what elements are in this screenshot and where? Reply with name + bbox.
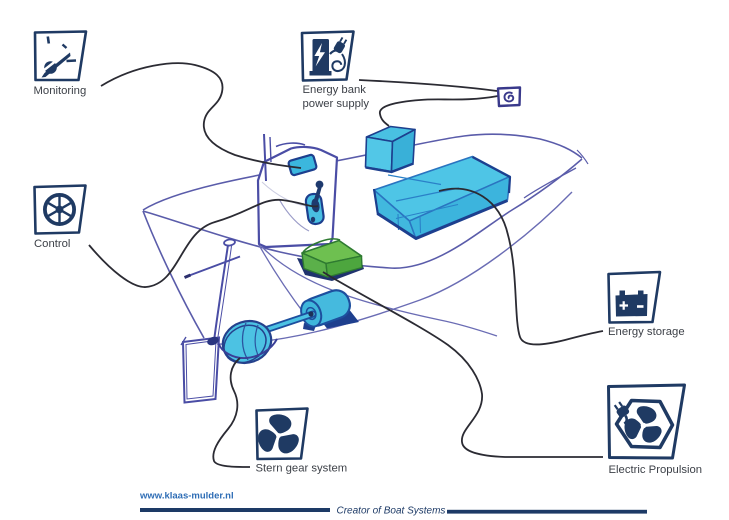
svg-text:www.klaas-mulder.nl: www.klaas-mulder.nl [139,491,234,502]
svg-text:Control: Control [34,238,70,250]
svg-text:Electric Propulsion: Electric Propulsion [609,464,703,476]
svg-text:Energy storage: Energy storage [608,326,685,338]
svg-text:Monitoring: Monitoring [34,85,87,97]
svg-text:power supply: power supply [303,98,370,110]
svg-text:Energy bank: Energy bank [303,84,367,96]
svg-text:Stern gear system: Stern gear system [256,463,348,475]
svg-text:Creator of Boat Systems: Creator of Boat Systems [337,506,446,517]
